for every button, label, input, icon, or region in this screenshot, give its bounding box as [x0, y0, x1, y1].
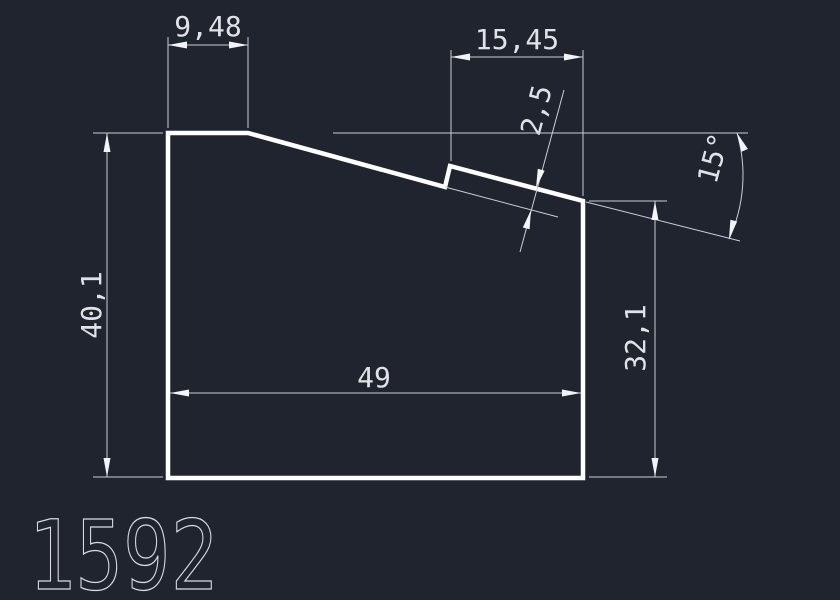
dim-left-height-label: 40,1: [75, 271, 108, 338]
dim-right-height-label: 32,1: [619, 304, 652, 371]
part-number-label: 1592: [28, 500, 218, 600]
dim-upper-width-label: 15,45: [475, 23, 559, 56]
dim-top-width-label: 9,48: [174, 10, 241, 43]
dim-bottom-width-label: 49: [357, 361, 391, 394]
cad-drawing-canvas: 40,1 9,48 15,45 2,5 15°: [0, 0, 840, 600]
